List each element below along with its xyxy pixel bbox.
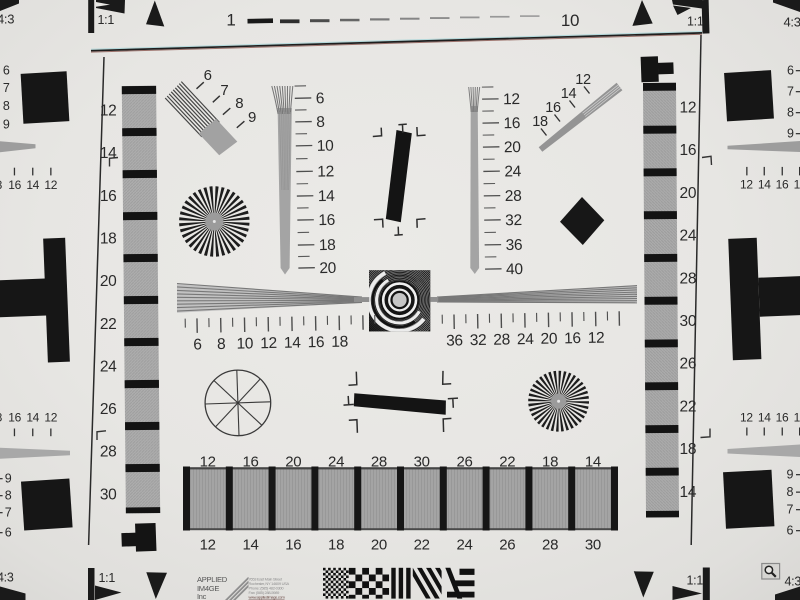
svg-text:12: 12	[100, 103, 117, 120]
svg-text:26: 26	[499, 536, 515, 553]
svg-text:18: 18	[542, 454, 558, 471]
svg-text:6: 6	[316, 90, 325, 107]
svg-text:24: 24	[517, 331, 535, 348]
svg-text:28: 28	[100, 444, 117, 461]
svg-text:18: 18	[794, 178, 800, 192]
svg-text:7: 7	[787, 503, 794, 517]
svg-text:12: 12	[260, 335, 277, 352]
svg-text:14: 14	[758, 178, 771, 192]
svg-text:7: 7	[787, 85, 794, 99]
svg-text:20: 20	[100, 273, 117, 290]
svg-text:18: 18	[319, 237, 336, 254]
svg-text:6: 6	[193, 336, 202, 353]
svg-text:28: 28	[493, 331, 510, 348]
svg-text:14: 14	[26, 178, 39, 192]
svg-text:8: 8	[787, 106, 794, 120]
svg-text:20: 20	[504, 139, 522, 156]
svg-text:9: 9	[787, 468, 794, 482]
svg-text:14: 14	[318, 188, 336, 205]
svg-text:14: 14	[100, 145, 117, 162]
svg-text:8: 8	[316, 114, 325, 131]
svg-text:24: 24	[456, 536, 472, 553]
svg-text:16: 16	[318, 212, 335, 229]
svg-text:9: 9	[5, 472, 12, 486]
svg-text:14: 14	[284, 334, 302, 351]
svg-text:12: 12	[588, 330, 605, 347]
svg-text:28: 28	[680, 270, 697, 287]
svg-text:12: 12	[317, 163, 334, 180]
svg-text:14: 14	[680, 484, 697, 501]
svg-text:36: 36	[446, 332, 463, 349]
svg-text:4:3: 4:3	[0, 12, 14, 27]
svg-text:12: 12	[44, 178, 57, 192]
svg-text:1:1: 1:1	[687, 574, 704, 588]
svg-text:22: 22	[414, 536, 430, 553]
svg-text:4:3: 4:3	[784, 15, 800, 30]
svg-text:1:1: 1:1	[687, 14, 704, 28]
svg-text:16: 16	[776, 178, 789, 192]
svg-text:APPLIED: APPLIED	[197, 575, 228, 584]
svg-text:Inc: Inc	[197, 592, 207, 600]
svg-text:24: 24	[680, 228, 697, 245]
svg-text:24: 24	[328, 454, 344, 471]
svg-text:22: 22	[680, 398, 697, 415]
svg-text:14: 14	[758, 411, 771, 425]
svg-text:10: 10	[236, 335, 254, 352]
svg-text:www.appliedimage.com: www.appliedimage.com	[249, 595, 286, 600]
svg-text:20: 20	[680, 185, 697, 202]
svg-text:22: 22	[499, 454, 515, 471]
svg-text:1: 1	[226, 11, 235, 30]
svg-text:32: 32	[505, 212, 522, 229]
svg-text:7: 7	[5, 506, 12, 520]
svg-text:9: 9	[787, 127, 794, 141]
svg-text:30: 30	[680, 313, 697, 330]
svg-text:16: 16	[100, 188, 117, 205]
svg-text:16: 16	[776, 411, 789, 425]
svg-text:12: 12	[200, 454, 216, 471]
svg-text:18: 18	[532, 114, 548, 130]
svg-text:12: 12	[200, 536, 216, 553]
svg-text:8: 8	[217, 336, 226, 353]
svg-text:1:1: 1:1	[98, 13, 115, 27]
svg-text:28: 28	[371, 454, 387, 471]
svg-text:14: 14	[561, 86, 577, 102]
svg-text:4:3: 4:3	[785, 575, 800, 589]
svg-text:20: 20	[371, 536, 387, 553]
svg-text:12: 12	[575, 72, 591, 88]
svg-text:8: 8	[3, 99, 10, 113]
svg-text:16: 16	[8, 178, 21, 192]
svg-text:20: 20	[285, 454, 301, 471]
svg-text:18: 18	[680, 441, 697, 458]
svg-text:28: 28	[542, 536, 558, 553]
svg-text:16: 16	[564, 330, 581, 347]
svg-text:16: 16	[307, 334, 324, 351]
svg-text:6: 6	[3, 64, 10, 78]
svg-text:16: 16	[285, 536, 301, 553]
svg-text:4:3: 4:3	[0, 571, 14, 585]
svg-text:12: 12	[680, 100, 697, 117]
svg-text:16: 16	[503, 115, 520, 132]
svg-text:14: 14	[26, 411, 39, 425]
svg-text:7: 7	[3, 81, 10, 95]
svg-text:6: 6	[204, 67, 212, 84]
svg-text:14: 14	[585, 454, 601, 471]
svg-text:16: 16	[8, 411, 21, 425]
svg-text:36: 36	[505, 237, 522, 254]
svg-text:8: 8	[5, 489, 12, 503]
svg-text:26: 26	[100, 401, 117, 418]
svg-text:1:1: 1:1	[99, 571, 116, 585]
svg-text:14: 14	[242, 536, 258, 553]
svg-text:18: 18	[100, 230, 117, 247]
svg-text:10: 10	[317, 138, 335, 155]
svg-text:30: 30	[414, 454, 430, 471]
svg-text:8: 8	[787, 485, 794, 499]
svg-text:30: 30	[585, 536, 601, 553]
svg-text:18: 18	[794, 411, 800, 425]
svg-text:32: 32	[470, 332, 487, 349]
svg-text:8: 8	[235, 95, 243, 112]
svg-text:10: 10	[561, 11, 579, 30]
svg-text:22: 22	[100, 316, 117, 333]
svg-text:6: 6	[5, 526, 12, 540]
svg-text:6: 6	[787, 64, 794, 78]
svg-text:24: 24	[504, 163, 522, 180]
svg-text:16: 16	[242, 454, 258, 471]
svg-text:20: 20	[540, 330, 558, 347]
svg-text:12: 12	[503, 91, 520, 108]
svg-text:26: 26	[680, 356, 697, 373]
svg-text:40: 40	[506, 261, 524, 278]
svg-text:28: 28	[505, 188, 522, 205]
svg-text:6: 6	[787, 524, 794, 538]
svg-text:9: 9	[3, 118, 10, 132]
svg-text:12: 12	[740, 411, 753, 425]
svg-text:12: 12	[740, 178, 753, 192]
svg-text:26: 26	[456, 454, 472, 471]
svg-text:24: 24	[100, 358, 117, 375]
svg-text:30: 30	[100, 486, 117, 503]
svg-text:18: 18	[331, 334, 348, 351]
svg-text:12: 12	[44, 411, 57, 425]
svg-text:18: 18	[328, 536, 344, 553]
svg-text:9: 9	[248, 109, 256, 126]
svg-text:20: 20	[319, 260, 337, 277]
svg-text:16: 16	[680, 142, 697, 159]
svg-text:7: 7	[220, 82, 228, 99]
